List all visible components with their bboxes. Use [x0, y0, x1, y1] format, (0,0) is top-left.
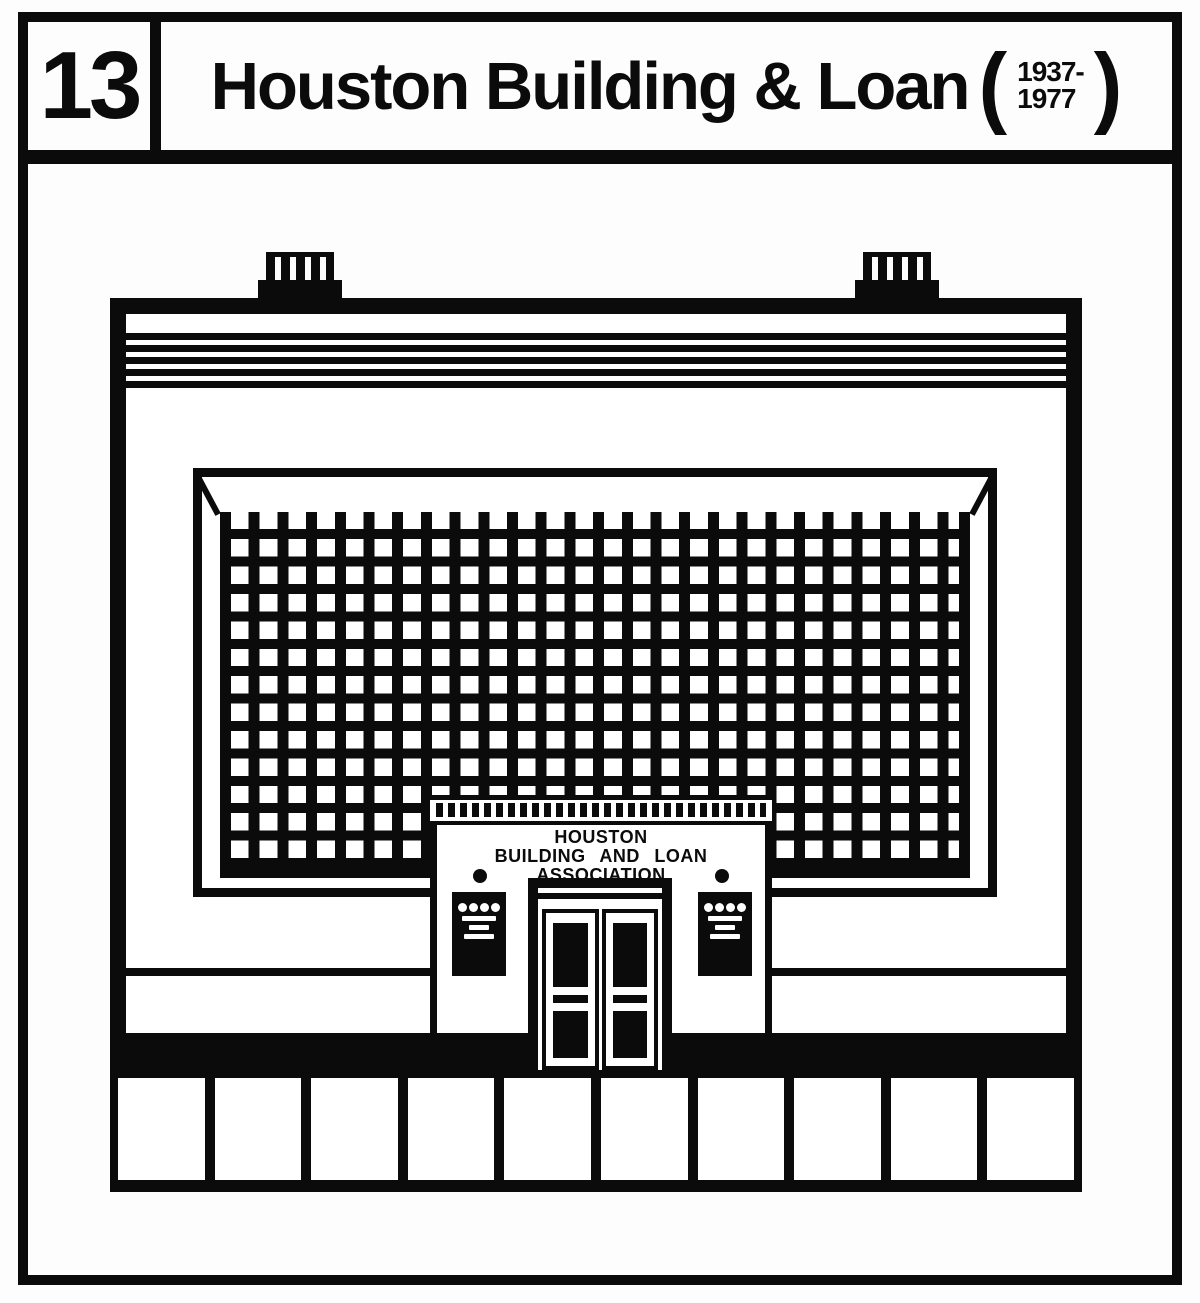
base-band-right: [667, 1033, 1066, 1075]
entrance-light-right: [715, 869, 729, 883]
plate-number: 13: [28, 22, 150, 150]
plaque-dot: [737, 903, 746, 912]
door-left: [542, 909, 599, 1070]
push-bar: [613, 987, 648, 995]
door-lintel: [538, 893, 662, 899]
chimney-base: [258, 280, 342, 298]
dentil-frieze: [430, 795, 772, 825]
entrance-light-left: [473, 869, 487, 883]
roof-stripe-band: [126, 333, 1066, 388]
sign-line-1: HOUSTON: [437, 828, 765, 847]
storefront-panel: [118, 1078, 205, 1180]
storefront-panel: [311, 1078, 398, 1180]
chimney-base: [855, 280, 939, 298]
push-bar: [553, 1003, 588, 1011]
page-title: Houston Building & Loan: [211, 48, 969, 125]
plaque-dots: [698, 903, 752, 912]
years-top: 1937-: [1017, 59, 1084, 86]
storefront-panel: [987, 1078, 1074, 1180]
wall-plaque-left: [452, 892, 506, 976]
storefront-panel: [215, 1078, 302, 1180]
storefront-row: [110, 1075, 1082, 1192]
push-bar: [553, 987, 588, 995]
storefront-panel: [504, 1078, 591, 1180]
panel-bevel-top-right: [969, 476, 994, 516]
plaque-fine-print-line: [710, 934, 740, 939]
chimney-slats: [863, 257, 931, 280]
door-panel: [553, 923, 588, 1058]
years-bottom: 1977: [1017, 86, 1084, 113]
storefront-panel: [698, 1078, 785, 1180]
years-paren-close: ): [1094, 41, 1123, 131]
wall-plaque-right: [698, 892, 752, 976]
plaque-dot: [458, 903, 467, 912]
plaque-dots: [452, 903, 506, 912]
double-doors: [542, 909, 658, 1070]
panel-bevel-top-left: [196, 476, 221, 516]
plaque-dot: [469, 903, 478, 912]
door-panel: [613, 923, 648, 1058]
years-paren-open: (: [978, 41, 1007, 131]
plaque-fine-print-line: [462, 916, 496, 921]
sign-line-2: BUILDING AND LOAN: [437, 847, 765, 866]
plaque-dot: [704, 903, 713, 912]
plaque-fine-print-line: [464, 934, 494, 939]
building-illustration: HOUSTON BUILDING AND LOAN ASSOCIATION: [110, 252, 1082, 1192]
plaque-dot: [726, 903, 735, 912]
storefront-panel: [601, 1078, 688, 1180]
facade-line-right: [772, 968, 1066, 976]
facade-line-left: [126, 968, 430, 976]
base-band-left: [126, 1033, 533, 1075]
storefront-panel: [891, 1078, 978, 1180]
plaque-fine-print-line: [469, 925, 489, 930]
door-right: [602, 909, 659, 1070]
storefront-panel: [408, 1078, 495, 1180]
chimney-left: [258, 252, 342, 298]
plaque-fine-print-line: [715, 925, 735, 930]
chimney-slats: [266, 257, 334, 280]
entrance-door-portal: [528, 878, 672, 1078]
chimney-right: [855, 252, 939, 298]
header-rule: [18, 150, 1182, 164]
plaque-dot: [480, 903, 489, 912]
portal-sill: [538, 1070, 662, 1078]
plaque-dot: [715, 903, 724, 912]
header-divider: [150, 12, 161, 164]
years-range: 1937- 1977: [1017, 59, 1084, 112]
book-plate-page: 13 Houston Building & Loan ( 1937- 1977 …: [0, 0, 1200, 1303]
push-bar: [613, 1003, 648, 1011]
plaque-fine-print-line: [708, 916, 742, 921]
header-title: Houston Building & Loan ( 1937- 1977 ): [161, 22, 1172, 150]
storefront-panel: [794, 1078, 881, 1180]
plaque-dot: [491, 903, 500, 912]
dentil-pattern: [436, 803, 766, 817]
